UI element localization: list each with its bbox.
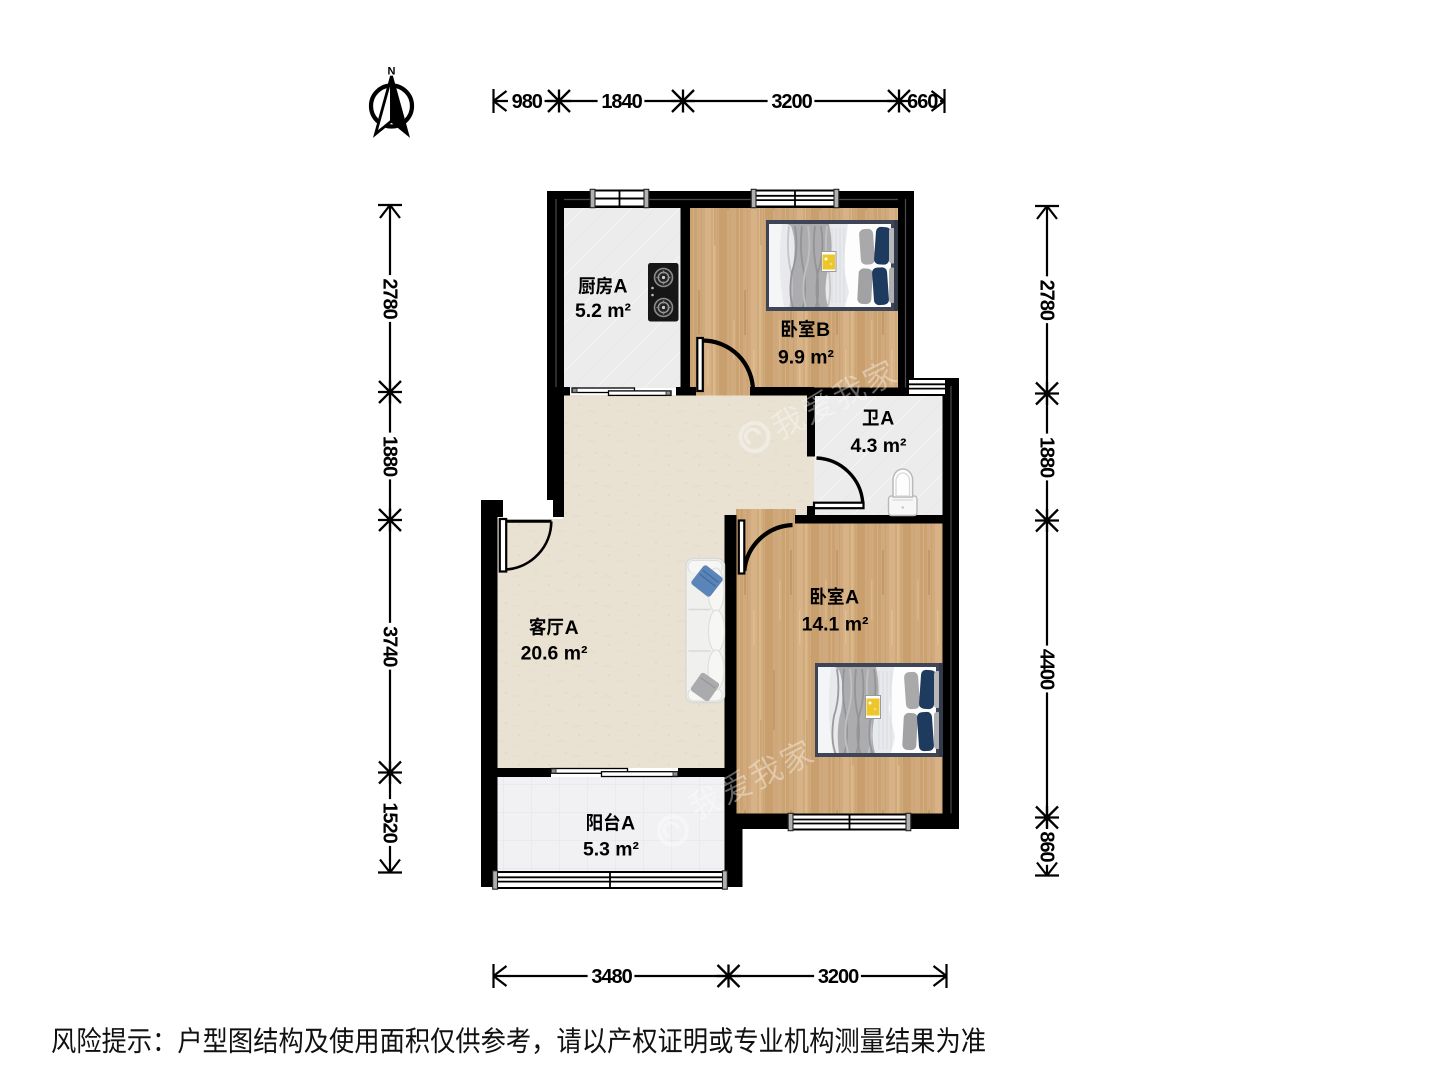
svg-text:4400: 4400 xyxy=(1035,649,1057,690)
svg-text:9.9 m²: 9.9 m² xyxy=(778,347,835,369)
svg-text:980: 980 xyxy=(512,91,543,113)
svg-text:A: A xyxy=(880,407,894,429)
svg-text:2780: 2780 xyxy=(378,278,400,319)
svg-text:860: 860 xyxy=(1035,831,1057,862)
svg-text:N: N xyxy=(388,66,396,78)
svg-text:1880: 1880 xyxy=(1035,437,1057,478)
svg-text:A: A xyxy=(614,276,628,298)
svg-text:3200: 3200 xyxy=(771,91,812,113)
svg-text:A: A xyxy=(565,617,579,639)
svg-text:A: A xyxy=(845,586,859,608)
svg-text:20.6 m²: 20.6 m² xyxy=(521,643,588,665)
svg-text:A: A xyxy=(621,812,635,834)
svg-text:1520: 1520 xyxy=(378,802,400,843)
svg-text:3740: 3740 xyxy=(378,626,400,667)
svg-text:5.2 m²: 5.2 m² xyxy=(575,300,632,322)
svg-text:1840: 1840 xyxy=(601,91,642,113)
svg-text:3200: 3200 xyxy=(818,966,859,988)
svg-text:B: B xyxy=(816,319,830,341)
svg-text:660: 660 xyxy=(907,91,938,113)
svg-text:4.3 m²: 4.3 m² xyxy=(850,435,907,457)
svg-text:3480: 3480 xyxy=(591,966,632,988)
svg-text:1880: 1880 xyxy=(378,436,400,477)
svg-text:2780: 2780 xyxy=(1035,280,1057,321)
svg-text:5.3 m²: 5.3 m² xyxy=(583,839,640,861)
svg-text:14.1 m²: 14.1 m² xyxy=(802,614,869,636)
